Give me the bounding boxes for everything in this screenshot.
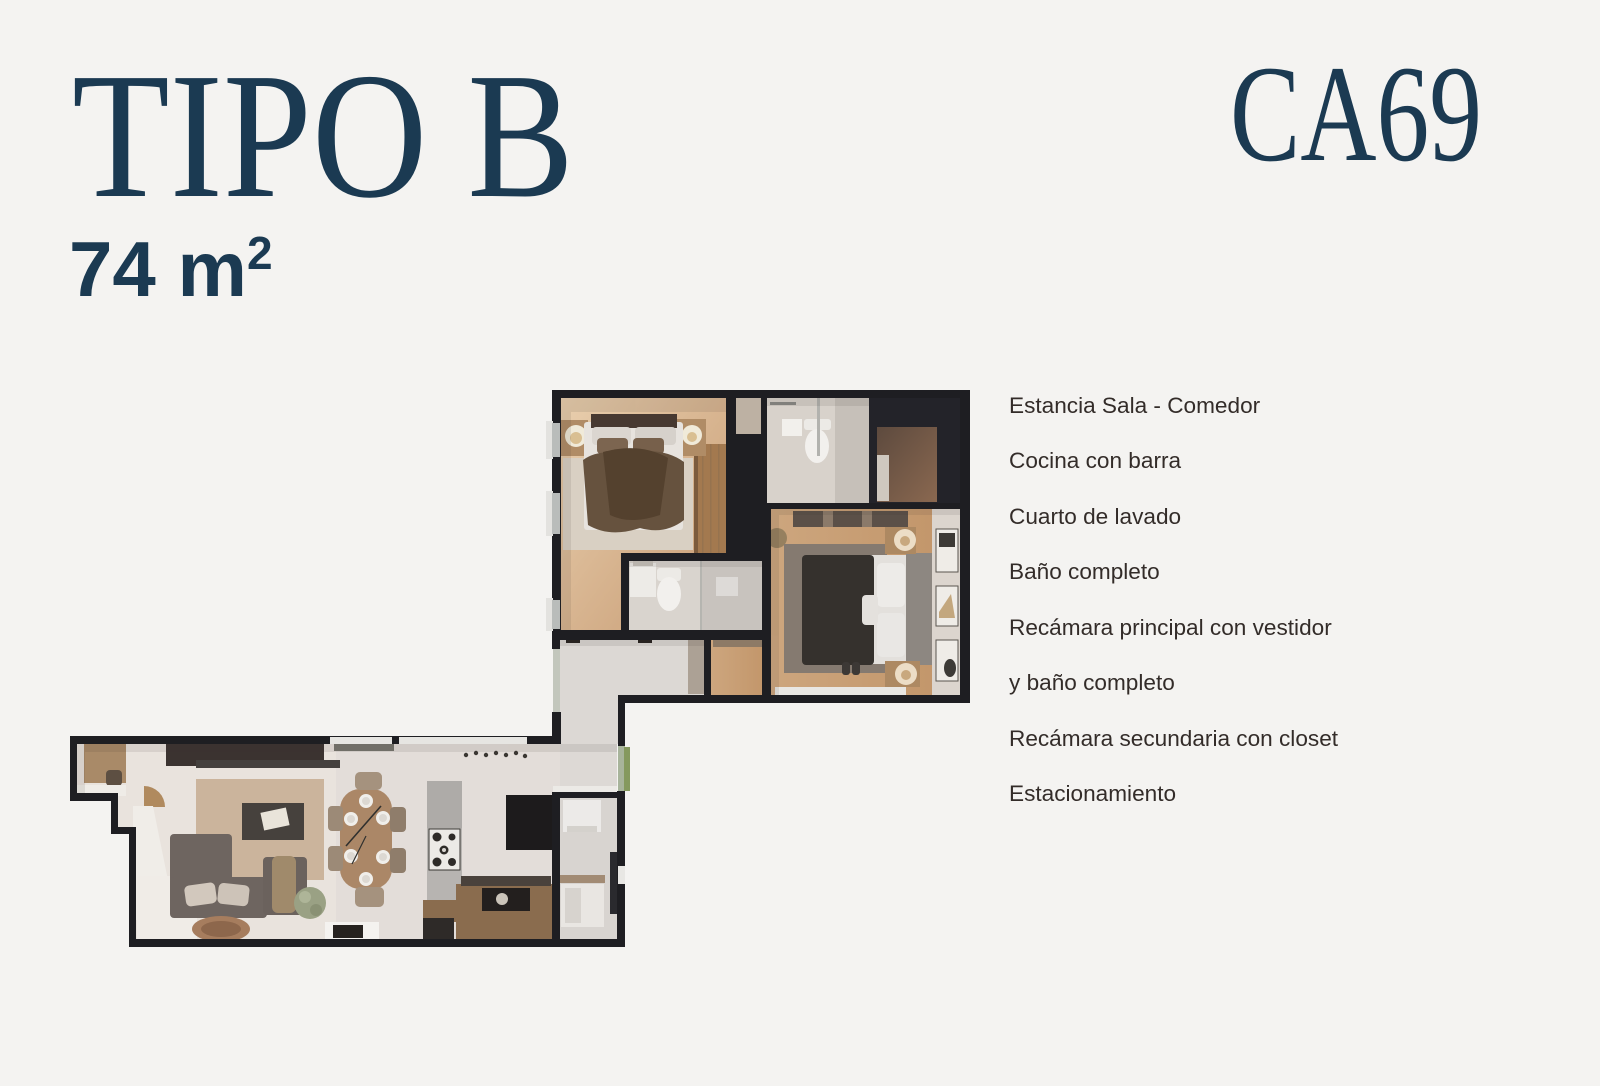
svg-text:2: 2 bbox=[247, 227, 273, 279]
svg-text:TIPO B: TIPO B bbox=[72, 50, 574, 220]
svg-text:74 m: 74 m bbox=[69, 225, 247, 310]
svg-text:CA69: CA69 bbox=[1230, 37, 1482, 180]
